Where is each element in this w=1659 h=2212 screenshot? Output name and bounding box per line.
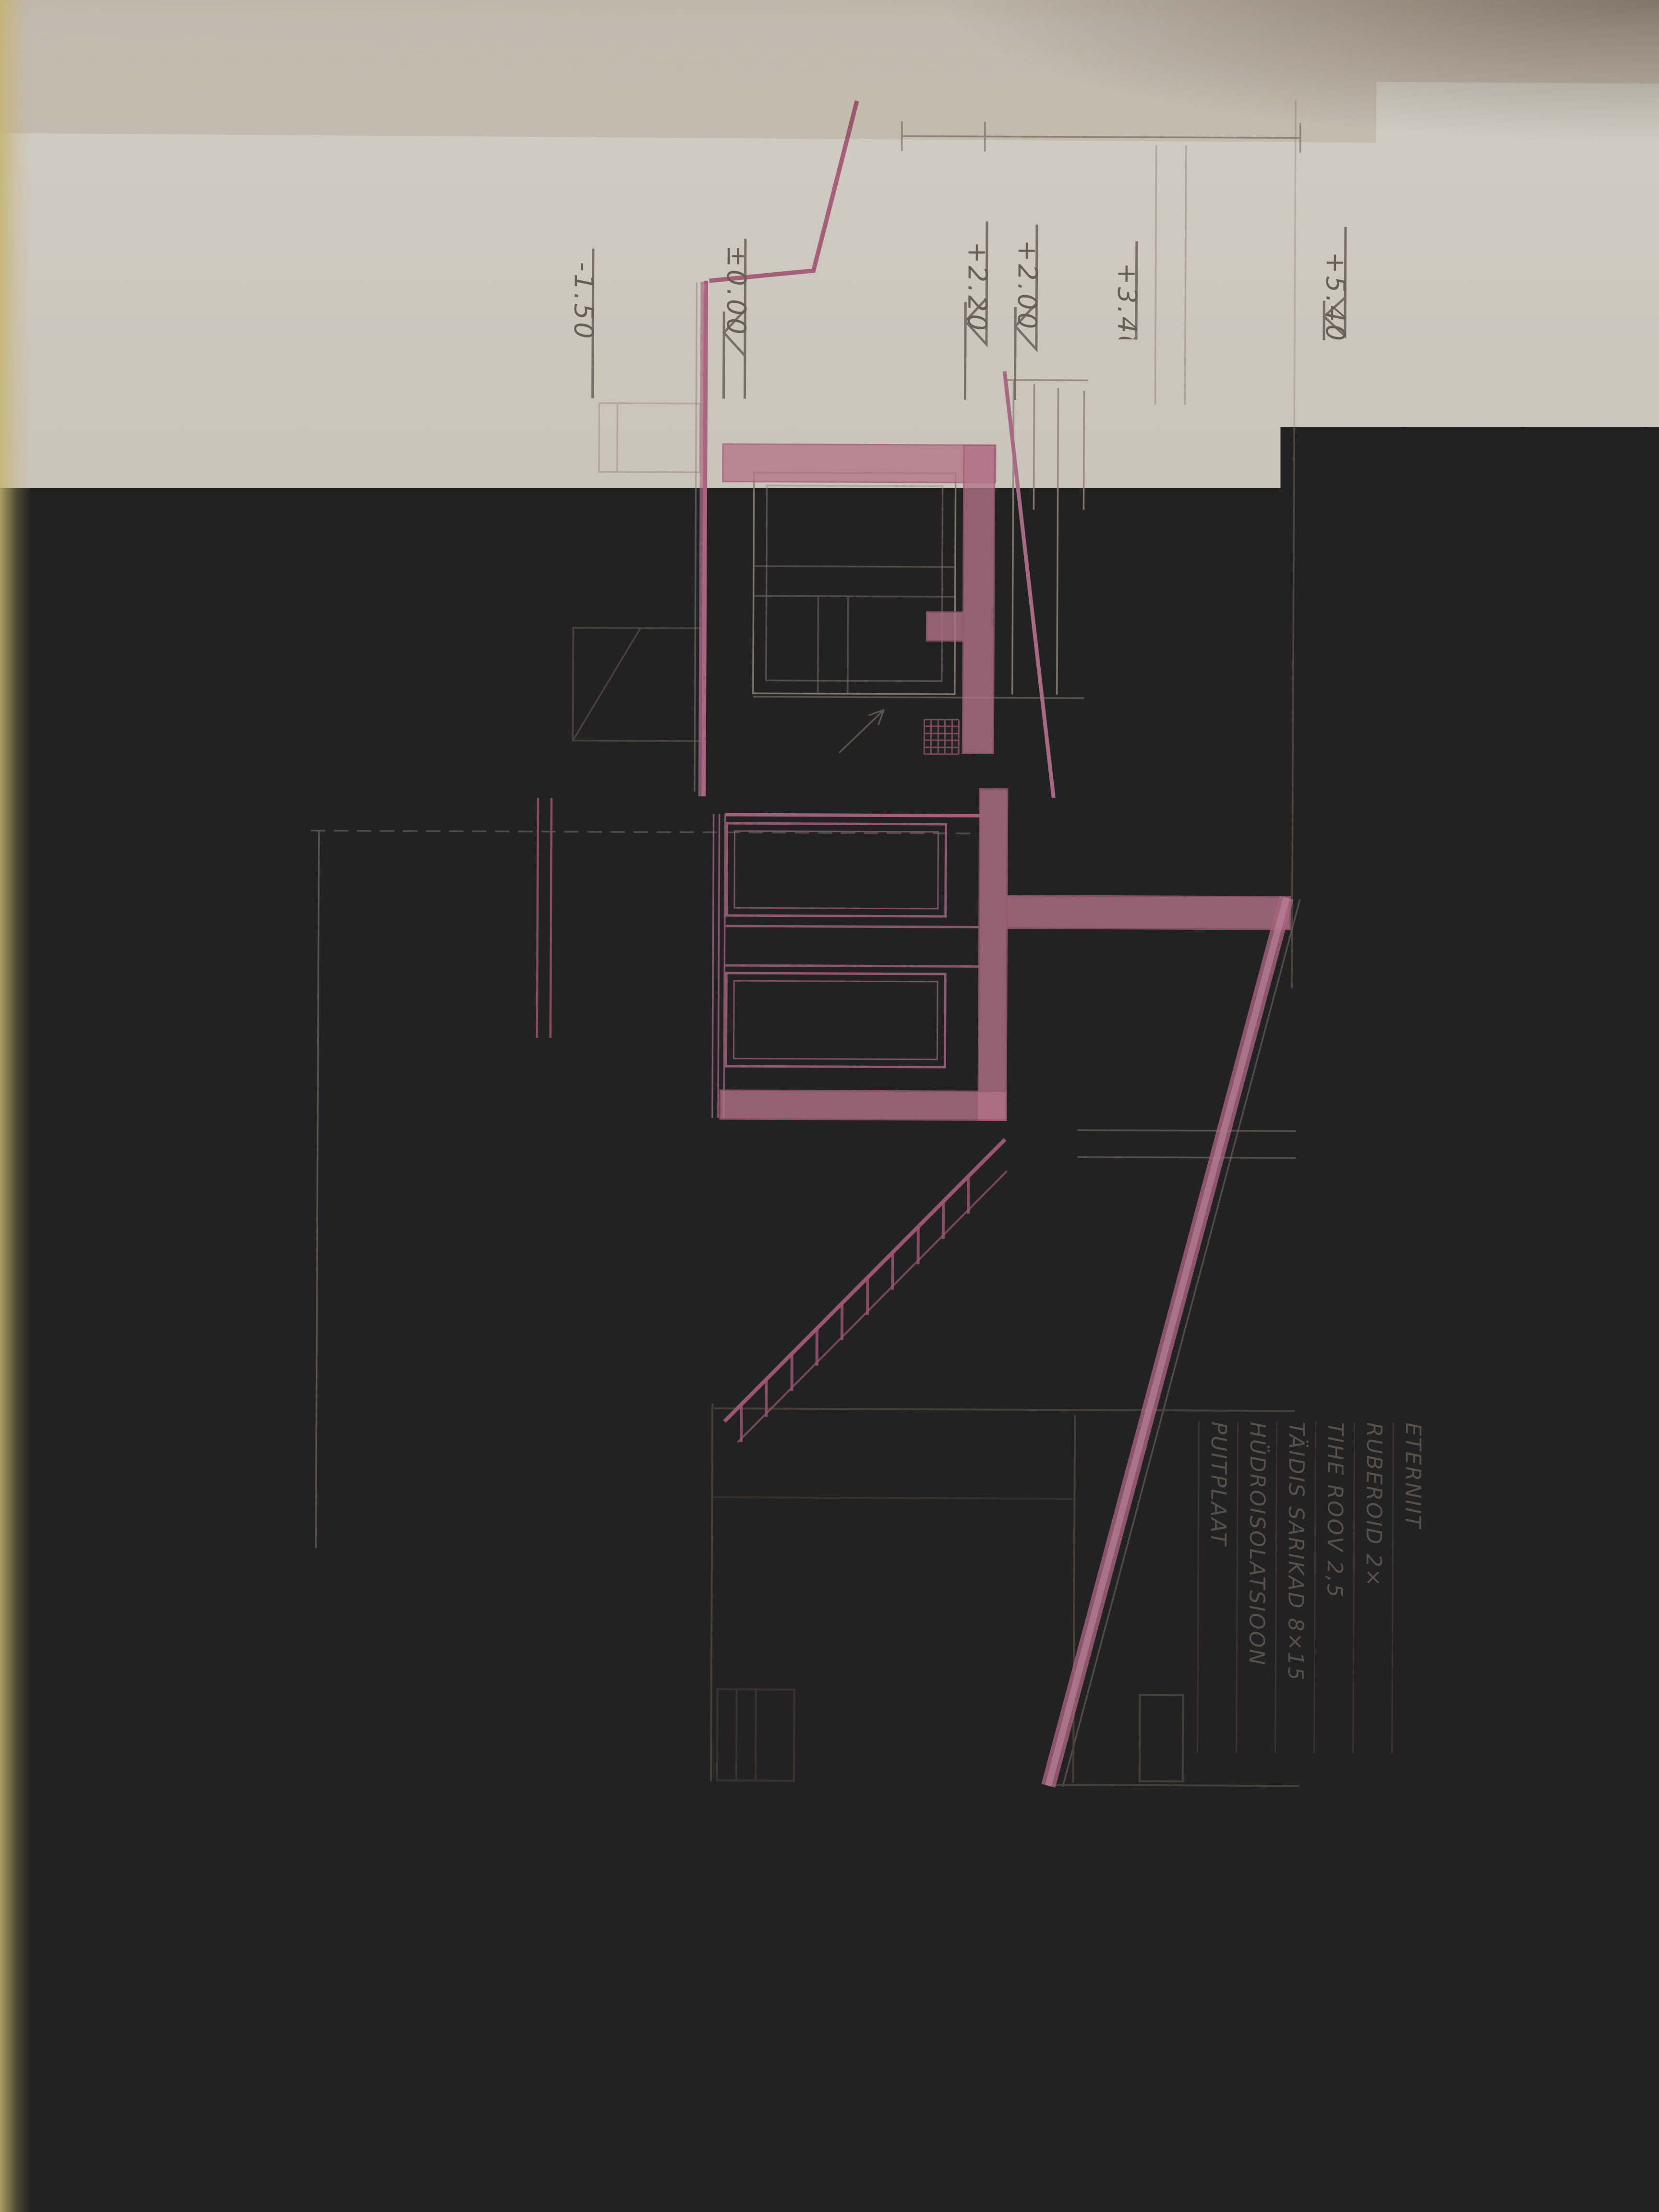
elevation-label: +2.70: [1014, 1951, 1045, 2043]
note-roof-upper: RUBEROID 3 × THE ROOV 2.5 TALA 8×15 TÄID…: [1067, 403, 1235, 673]
drawing-sheet: RUBEROID 3 × THE ROOV 2.5 TALA 8×15 TÄID…: [0, 0, 1659, 2212]
note-line: TÄIDIS SARIKAD 8×15: [1274, 1422, 1315, 1753]
elevation-label: +2.20: [962, 241, 993, 333]
note-line: BETOON 5 CM: [555, 494, 597, 756]
note-line: KILLUSTIK 10 CM: [315, 1232, 356, 1460]
note-line: KILLUSTIK: [514, 494, 556, 756]
elevation-label: +2.20: [950, 1960, 981, 2052]
elevation-label: +2.50: [979, 1972, 1010, 2064]
note-line: PUITPÕRAND: [645, 1411, 684, 1570]
title-scale: M 1:50: [72, 1389, 191, 1688]
note-line: ETERNIIT: [1391, 1422, 1431, 1754]
elevation-label: ±0.00: [721, 245, 752, 337]
elevation-label: -3.60: [301, 1959, 331, 2038]
note-beam-size: 4*60: [1083, 1094, 1162, 1130]
note-line: TALA 8×15 TÄIDIS: [1108, 404, 1151, 673]
note-line: HÜDROISOLATSIOON: [1236, 1422, 1276, 1753]
drawing-title: LÕIGE A-A M 1:50: [72, 1384, 242, 1690]
note-line: BETOON 5.0 CM: [355, 1233, 396, 1461]
section-drawing: [0, 0, 1659, 2212]
note-line: PUITPLAAT: [1197, 1421, 1237, 1753]
note-roof-lower: ETERNIIT RUBEROID 2× TIHE ROOV 2,5 TÄIDI…: [1197, 1421, 1431, 1754]
elevation-label: +5.40: [1320, 252, 1351, 343]
elevation-label: +5.85: [1316, 1957, 1347, 2048]
pink-structure-middle: [712, 788, 1291, 1121]
note-floor-lower: PUITPÕRAND TÄIDIS R/BETOON: [567, 1411, 684, 1570]
note-floor-ground: TSEMENT 3.0 CM BETOON 5.0 CM KILLUSTIK 1…: [315, 1232, 435, 1461]
pencil-lines-upper: [307, 96, 1303, 1788]
photo-of-drawing: RUBEROID 3 × THE ROOV 2.5 TALA 8×15 TÄID…: [0, 0, 1659, 2212]
note-line: RUBEROID 2×: [1352, 1422, 1393, 1754]
elevation-label: +3.50: [1090, 1956, 1121, 2047]
note-line: LAUD 2,0 CM: [1067, 403, 1109, 672]
note-line: PUITPÕRAND: [637, 494, 678, 756]
note-line: TÄIDIS: [606, 1411, 645, 1570]
elevation-label: ±0.00: [699, 1944, 730, 2035]
elevation-label: -2.70: [428, 1959, 458, 2038]
elevation-label: +2.00: [1012, 240, 1043, 332]
note-line: TIHE ROOV 2,5: [1313, 1422, 1354, 1753]
note-line: TSEMENT PÕR. 3 CM: [596, 494, 637, 756]
elevation-label: +3.40: [1112, 263, 1142, 355]
note-line: THE ROOV 2.5: [1150, 404, 1193, 673]
note-line: R/BETOON: [567, 1411, 606, 1570]
elevation-label: -0.30: [665, 1973, 696, 2053]
note-line: RUBEROID 3 ×: [1192, 404, 1235, 673]
elevation-label: -1.50: [568, 262, 599, 341]
note-line: TSEMENT 3.0 CM: [395, 1233, 435, 1461]
elevation-markers-lower: [310, 1726, 1342, 2095]
note-floor-upper: PUITPÕRAND TSEMENT PÕR. 3 CM BETOON 5 CM…: [514, 494, 678, 756]
